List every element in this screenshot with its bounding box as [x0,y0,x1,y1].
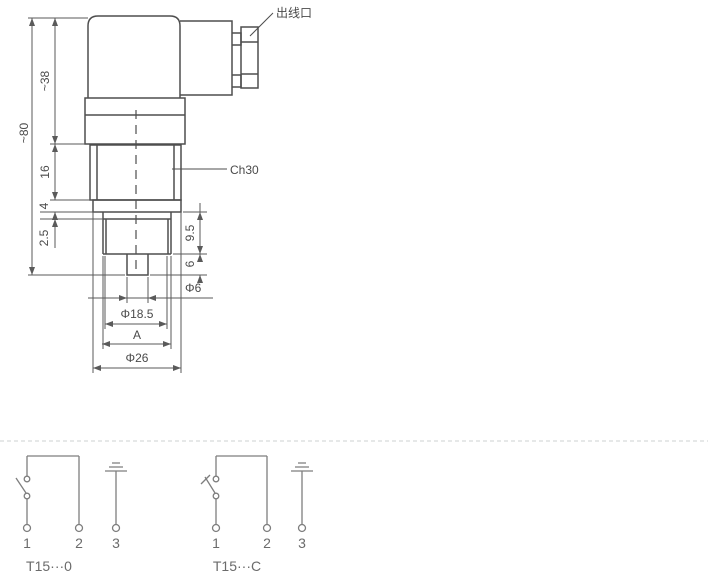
technical-drawing-canvas: Ch30 出线口 ~80 ~38 16 4 2.5 9.5 6 Φ6 Φ18.5… [0,0,708,583]
dim-tip-length: 6 [183,260,197,267]
switch-contact-upper [24,476,30,482]
terminal-circle-2 [264,525,271,532]
switch-contact-lower [24,493,30,499]
transmitter-outline-drawing: Ch30 出线口 [85,6,312,275]
cable-outlet-leader-line [250,13,273,36]
terminal-label-2: 2 [75,535,83,551]
dim-tip-diameter: Φ6 [185,281,202,295]
ground-symbol [105,463,127,524]
mounting-flange [85,98,185,144]
terminal-circle-1 [24,525,31,532]
terminal-label-1: 1 [212,535,220,551]
switch-contact-lower [213,493,219,499]
terminal-label-3: 3 [112,535,120,551]
wiring-t15-c-wires [216,456,267,524]
cable-outlet-label: 出线口 [276,6,312,20]
dim-step-height: 2.5 [37,229,51,246]
connector-housing [88,16,180,98]
switch-contact-upper [213,476,219,482]
sealing-washer [93,200,181,212]
dim-body-diameter: Φ26 [126,351,149,365]
wiring-diagram-t15-c: 1 2 3 T15···C [201,456,313,574]
circuit-title-t15-c: T15···C [213,558,261,574]
terminal-circle-3 [113,525,120,532]
terminal-label-2: 2 [263,535,271,551]
terminal-circle-3 [299,525,306,532]
hex-size-label: Ch30 [230,163,259,177]
cable-gland [241,27,258,88]
wiring-diagram-t15-0: 1 2 3 T15···0 [16,456,127,574]
pressure-port-tip [127,254,148,275]
dim-collar-height: 4 [37,202,51,209]
circuit-title-t15-0: T15···0 [26,558,72,574]
ground-symbol [291,463,313,524]
thread-section [103,212,171,254]
terminal-label-1: 1 [23,535,31,551]
cable-gland-tabs [232,33,241,87]
terminal-label-3: 3 [298,535,306,551]
connector-block [180,21,232,95]
dim-thread-size: A [133,328,141,342]
wiring-t15-0-wires [27,456,79,524]
dim-thread-diameter: Φ18.5 [121,307,154,321]
terminal-circle-1 [213,525,220,532]
dim-head-height: ~38 [38,70,52,91]
pressure-transmitter-datasheet-figure: Ch30 出线口 ~80 ~38 16 4 2.5 9.5 6 Φ6 Φ18.5… [0,0,708,583]
dim-overall-height: ~80 [17,122,31,143]
terminal-circle-2 [76,525,83,532]
dimension-annotations: ~80 ~38 16 4 2.5 9.5 6 Φ6 Φ18.5 A Φ26 [17,18,213,373]
dim-thread-length: 9.5 [183,224,197,241]
dim-hex-height: 16 [38,165,52,179]
